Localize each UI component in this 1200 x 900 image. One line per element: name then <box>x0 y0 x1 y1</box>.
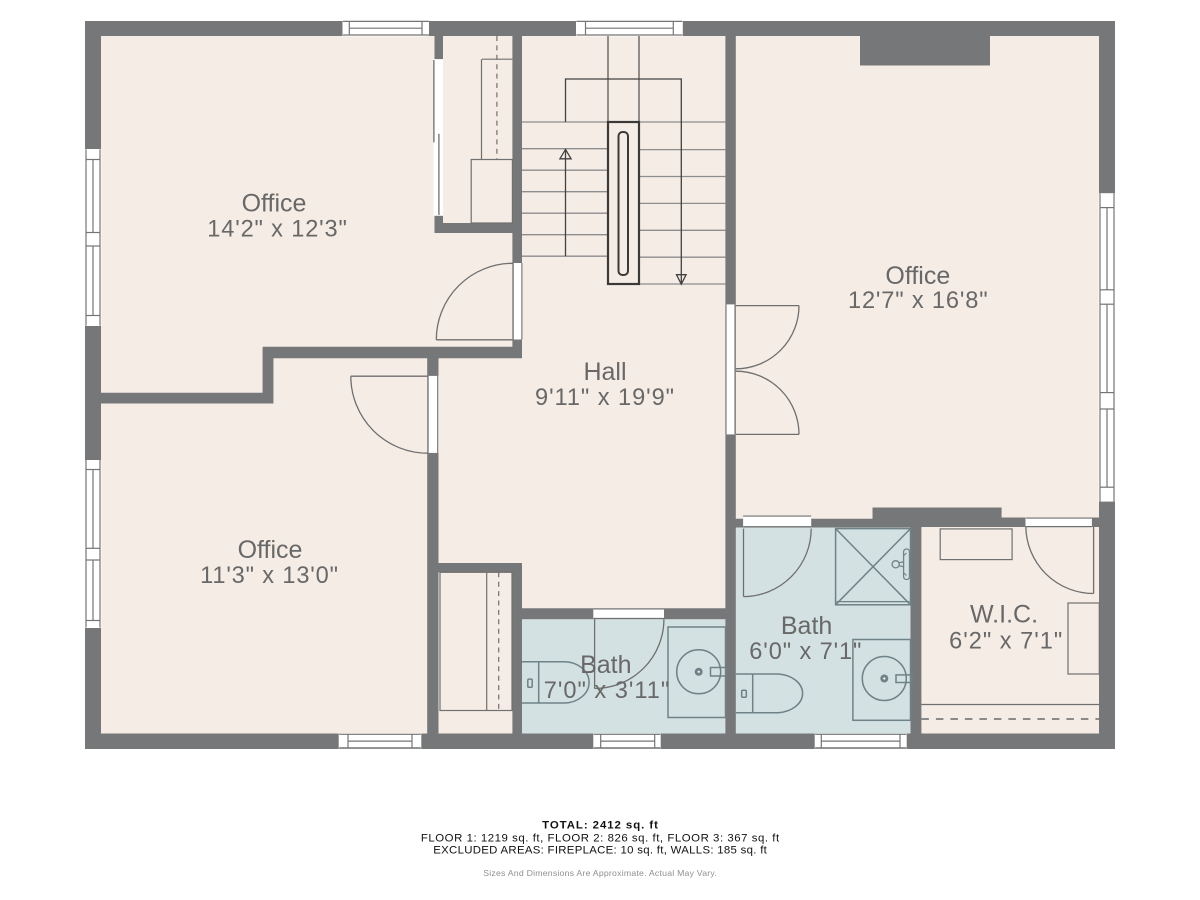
svg-text:Bath: Bath <box>580 651 631 679</box>
svg-text:14'2" x 12'3": 14'2" x 12'3" <box>207 217 347 243</box>
svg-text:TOTAL: 2412 sq. ft: TOTAL: 2412 sq. ft <box>542 820 659 832</box>
svg-text:FLOOR 1: 1219 sq. ft, FLOOR 2:: FLOOR 1: 1219 sq. ft, FLOOR 2: 826 sq. f… <box>421 833 780 845</box>
svg-text:11'3" x 13'0": 11'3" x 13'0" <box>200 563 339 589</box>
svg-text:Sizes And Dimensions Are Appro: Sizes And Dimensions Are Approximate. Ac… <box>483 868 717 878</box>
svg-text:Office: Office <box>238 536 303 564</box>
svg-text:Office: Office <box>242 190 307 218</box>
svg-text:Bath: Bath <box>781 612 832 640</box>
svg-text:7'0" x 3'11": 7'0" x 3'11" <box>544 678 671 704</box>
svg-text:12'7" x 16'8": 12'7" x 16'8" <box>848 288 988 314</box>
svg-text:6'2" x 7'1": 6'2" x 7'1" <box>949 629 1063 655</box>
svg-text:Office: Office <box>885 262 950 290</box>
svg-text:EXCLUDED AREAS: FIREPLACE: 10: EXCLUDED AREAS: FIREPLACE: 10 sq. ft, WA… <box>433 844 767 856</box>
svg-text:6'0" x 7'1": 6'0" x 7'1" <box>749 639 862 665</box>
svg-text:9'11" x 19'9": 9'11" x 19'9" <box>535 385 675 411</box>
svg-text:W.I.C.: W.I.C. <box>970 601 1038 629</box>
svg-text:Hall: Hall <box>583 358 626 386</box>
